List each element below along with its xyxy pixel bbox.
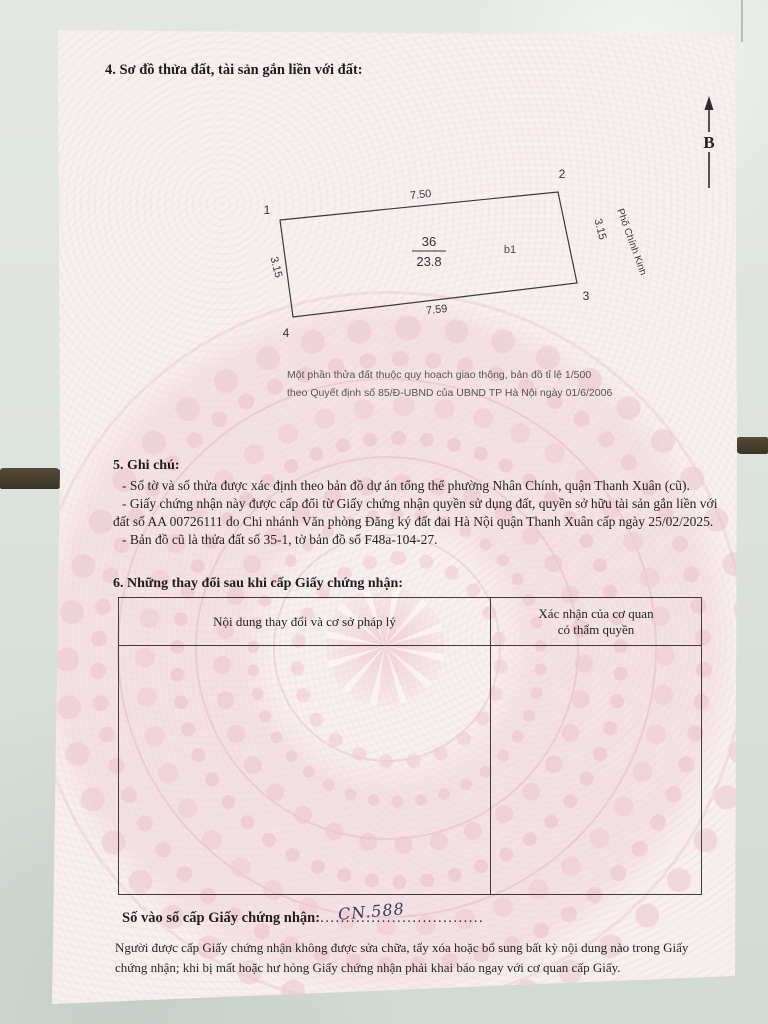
plot-dim-top: 7.50	[409, 188, 432, 202]
north-label: B	[703, 133, 714, 152]
street-label: Phố Chính Kinh	[614, 207, 645, 277]
plot-dim-left: 3.15	[267, 255, 284, 279]
tile-grout-line-left	[0, 468, 61, 489]
section6-title: 6. Những thay đổi sau khi cấp Giấy chứng…	[113, 576, 403, 592]
note-item: - Bản đồ cũ là thửa đất số 35-1, tờ bản …	[113, 531, 729, 549]
table-header-confirmation: Xác nhận của cơ quan có thẩm quyền	[491, 598, 701, 646]
plot-corner-4: 4	[283, 326, 290, 340]
plot-number: 36	[422, 234, 436, 249]
plot-dim-bottom: 7.59	[425, 303, 448, 317]
section5-title: 5. Ghi chú:	[113, 458, 180, 474]
section4-title: 4. Sơ đồ thửa đất, tài sản gắn liền với …	[105, 62, 363, 79]
north-arrow-icon: B	[698, 94, 720, 190]
registry-line: Số vào sổ cấp Giấy chứng nhận:..........…	[122, 910, 484, 927]
tile-seam-top-right	[741, 0, 743, 42]
plot-area: 23.8	[416, 254, 441, 269]
plot-sub-label: b1	[504, 244, 516, 256]
col2-header-line2: có thẩm quyền	[558, 622, 635, 638]
map-note-line2: theo Quyết định số 85/Đ-UBND của UBND TP…	[287, 384, 707, 402]
col1-header-label: Nội dung thay đổi và cơ sở pháp lý	[213, 614, 396, 630]
plot-corner-2: 2	[559, 167, 566, 181]
plot-corner-1: 1	[264, 203, 271, 217]
map-note-line1: Một phần thửa đất thuộc quy hoạch giao t…	[287, 366, 707, 384]
registry-label: Số vào sổ cấp Giấy chứng nhận:	[122, 910, 320, 926]
note-item: - Giấy chứng nhận này được cấp đổi từ Gi…	[113, 495, 729, 531]
notes-block: - Số tờ và số thửa được xác định theo bả…	[113, 477, 729, 549]
plot-dim-right: 3.15	[591, 217, 608, 241]
certificate-page: 4. Sơ đồ thửa đất, tài sản gắn liền với …	[0, 26, 740, 1016]
plot-corner-3: 3	[583, 289, 590, 303]
changes-table: Nội dung thay đổi và cơ sở pháp lý Xác n…	[118, 597, 702, 895]
footer-warning-text: Người được cấp Giấy chứng nhận không đượ…	[115, 938, 709, 977]
note-item: - Số tờ và số thửa được xác định theo bả…	[113, 477, 729, 495]
table-header-content: Nội dung thay đổi và cơ sở pháp lý	[119, 598, 491, 646]
table-body-confirmation-cell	[491, 646, 701, 894]
col2-header-line1: Xác nhận của cơ quan	[538, 606, 653, 622]
plot-diagram: 1 2 3 4 7.50 7.59 3.15 3.15 36 23.8 b1 P…	[245, 160, 645, 365]
photo-background: { "colors": { "paper": "#f7f0f0", "patte…	[0, 0, 768, 1024]
tile-grout-line-right	[736, 437, 768, 454]
table-body-content-cell	[119, 646, 491, 894]
